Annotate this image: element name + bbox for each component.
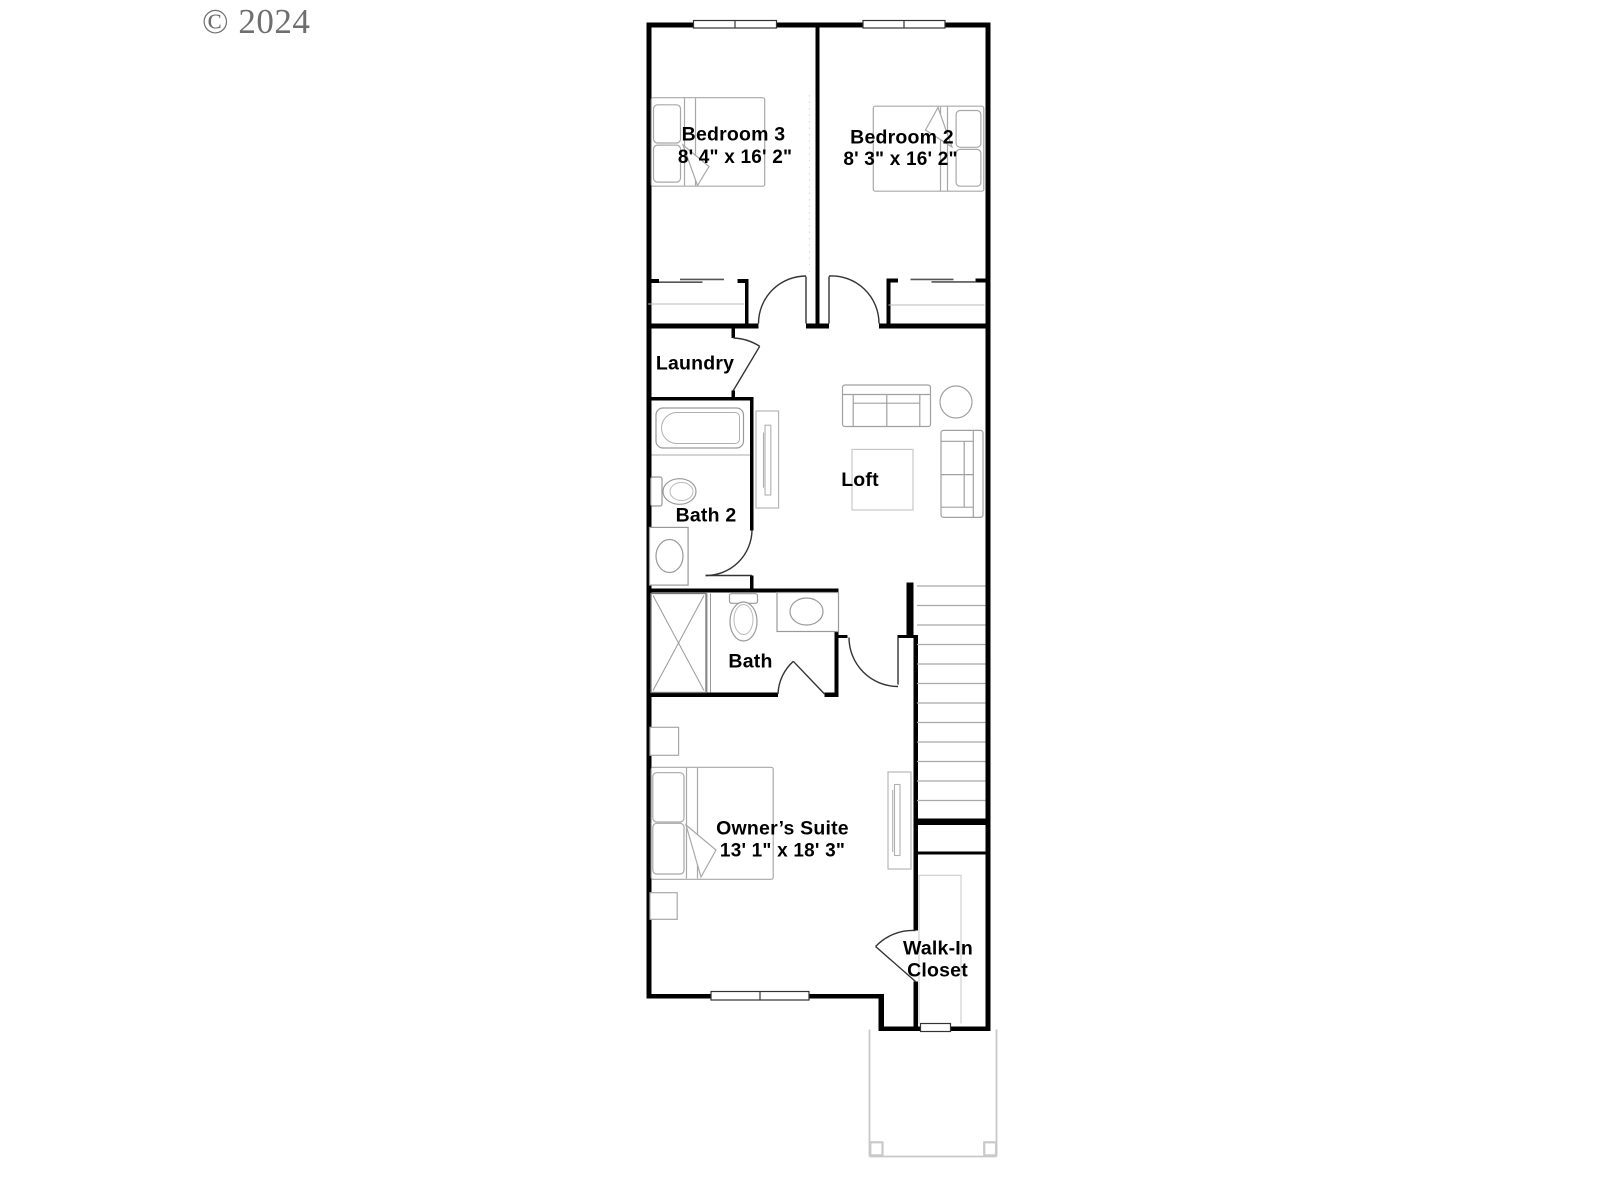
svg-text:Bedroom 2: Bedroom 2 [850, 127, 954, 149]
svg-text:13' 1" x 18' 3": 13' 1" x 18' 3" [720, 841, 845, 862]
svg-text:8' 3" x 16' 2": 8' 3" x 16' 2" [843, 149, 957, 170]
svg-text:Owner’s Suite: Owner’s Suite [716, 818, 849, 840]
svg-text:Walk-In: Walk-In [903, 938, 973, 960]
svg-text:Closet: Closet [907, 960, 968, 982]
svg-text:Bath 2: Bath 2 [676, 505, 737, 527]
svg-text:Bath: Bath [728, 651, 772, 673]
svg-text:Bedroom 3: Bedroom 3 [682, 124, 786, 146]
svg-text:© 2024: © 2024 [202, 2, 310, 41]
svg-text:Laundry: Laundry [656, 353, 734, 375]
svg-text:8' 4" x 16' 2": 8' 4" x 16' 2" [678, 147, 792, 168]
svg-text:Loft: Loft [841, 469, 879, 491]
